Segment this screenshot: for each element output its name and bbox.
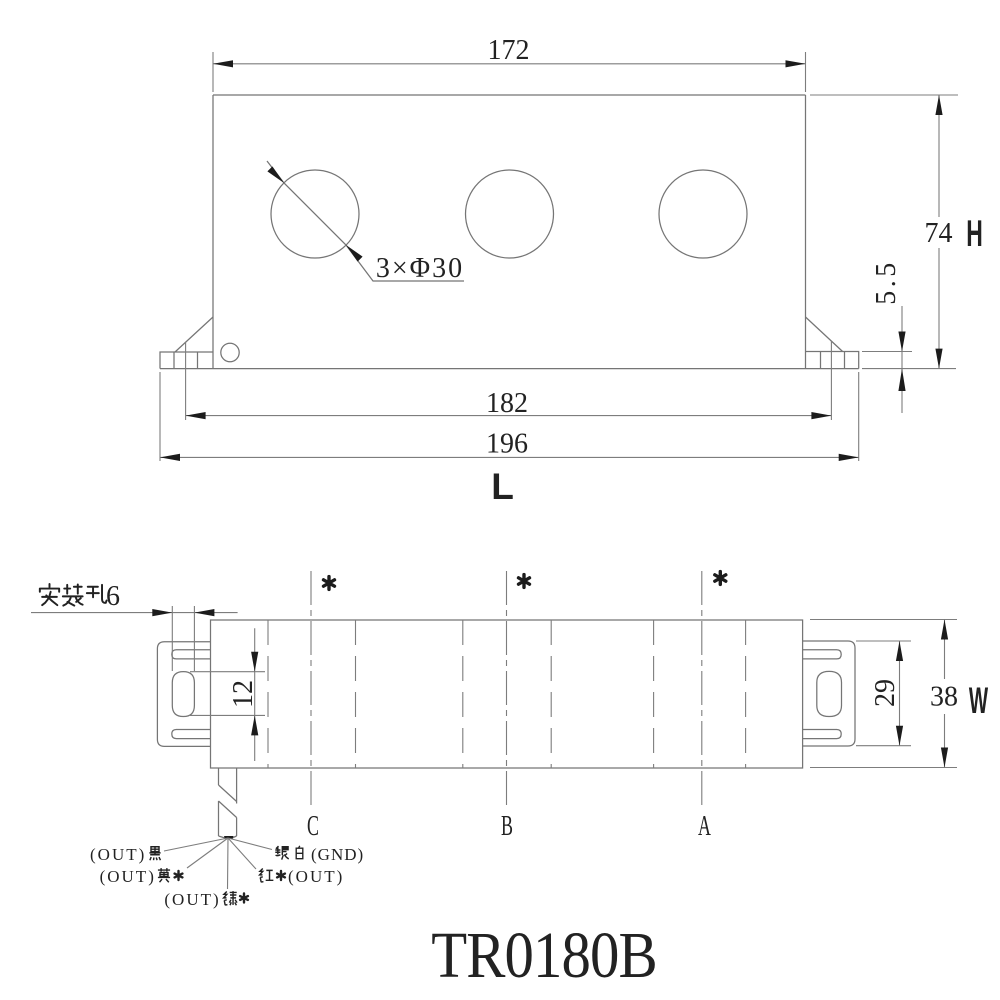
svg-text:6: 6 xyxy=(106,581,120,612)
svg-text:74: 74 xyxy=(925,218,953,249)
svg-text:182: 182 xyxy=(486,388,528,419)
svg-text:12: 12 xyxy=(228,680,259,708)
svg-text:B: B xyxy=(501,811,513,842)
svg-text:H: H xyxy=(966,212,983,254)
svg-text:A: A xyxy=(698,811,711,842)
svg-text:(OUT): (OUT) xyxy=(288,867,344,886)
svg-text:38: 38 xyxy=(930,682,958,713)
svg-text:L: L xyxy=(491,466,514,507)
svg-text:W: W xyxy=(969,681,989,722)
svg-text:5.5: 5.5 xyxy=(871,259,902,305)
svg-text:29: 29 xyxy=(870,679,901,707)
svg-text:TR0180B: TR0180B xyxy=(431,918,656,992)
svg-text:3×Φ30: 3×Φ30 xyxy=(376,253,464,284)
svg-text:(OUT): (OUT) xyxy=(100,867,156,886)
svg-text:196: 196 xyxy=(486,429,528,460)
svg-text:172: 172 xyxy=(488,35,530,66)
svg-text:(OUT): (OUT) xyxy=(90,845,146,864)
svg-text:C: C xyxy=(307,811,319,842)
svg-text:(GND): (GND) xyxy=(311,845,364,864)
svg-text:(OUT): (OUT) xyxy=(164,890,220,909)
